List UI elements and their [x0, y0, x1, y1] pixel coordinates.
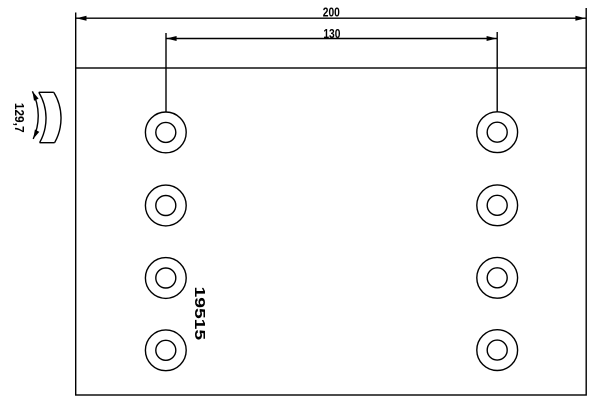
svg-text:200: 200 [323, 7, 340, 20]
svg-text:19515: 19515 [192, 287, 208, 341]
svg-text:129,7: 129,7 [12, 103, 26, 133]
svg-text:130: 130 [323, 28, 340, 41]
